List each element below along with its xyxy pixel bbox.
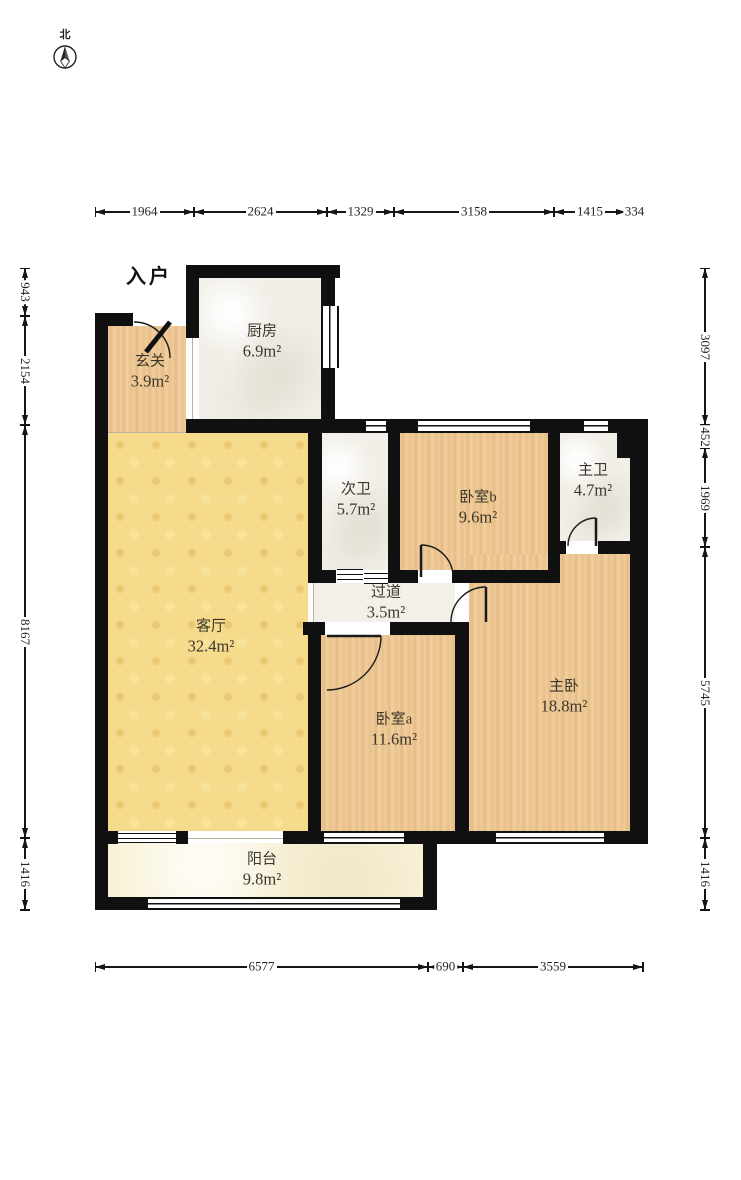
floor-plan: 北 入户 [0,0,741,1180]
wall [455,622,469,832]
dim-top-1: 2624 [194,205,327,219]
label-living-room: 客厅 32.4m² [188,617,235,656]
dim-right-2: 1969 [698,448,712,547]
wall [386,419,418,433]
wall [598,541,648,554]
window-master-bedroom [496,831,604,844]
wall [186,419,327,433]
wall [308,433,322,583]
window-kitchen [321,306,339,368]
dim-right-4: 1416 [698,838,712,910]
wall [604,831,648,844]
label-balcony: 阳台 9.8m² [243,850,281,889]
dim-top-5: 334 [626,205,643,219]
wall [308,622,321,843]
wall [327,419,366,433]
label-entry-hall: 玄关 3.9m² [131,352,169,391]
dim-top-0: 1964 [95,205,194,219]
wall [530,419,584,433]
wall [95,313,108,910]
wall [176,831,188,844]
sliding-door-second-bathroom-a [337,569,363,580]
sliding-door-living-balcony [118,833,176,843]
window-second-bathroom [366,419,386,433]
dim-top-3: 3158 [394,205,554,219]
north-arrow-icon [50,42,80,72]
compass: 北 [48,26,82,77]
dim-left-2: 8167 [18,425,32,838]
wall [95,897,148,910]
door-bedroom-a [324,633,384,693]
label-hallway: 过道 3.5m² [367,583,405,622]
wall [400,897,437,910]
dim-bottom-1: 690 [428,960,463,974]
open-boundary-hall-living [108,432,186,433]
door-master-bedroom [449,584,489,624]
wall [283,831,324,844]
label-master-bedroom: 主卧 18.8m² [541,677,588,716]
window-bedroom-b [418,419,530,433]
dim-bottom-0: 6577 [95,960,428,974]
wall [308,570,336,583]
wall [400,570,418,583]
open-boundary-living-hallway [313,583,314,622]
wall [186,265,340,278]
label-kitchen: 厨房 6.9m² [243,322,281,361]
wall [321,265,335,308]
open-boundary-hall-kitchen [192,338,193,419]
dim-right-1: 452 [698,425,712,448]
label-second-bathroom: 次卫 5.7m² [337,480,375,519]
dim-top-2: 1329 [327,205,394,219]
wall [95,831,118,844]
open-boundary-living-balcony [188,838,283,839]
entrance-label: 入户 [126,260,172,289]
wall [404,831,496,844]
wall [548,541,560,583]
dim-top-4: 1415 [554,205,626,219]
door-bedroom-b [418,542,456,580]
dim-right-3: 5745 [698,547,712,838]
label-bedroom-a: 卧室a 11.6m² [371,710,417,749]
door-master-bathroom [565,515,599,549]
dim-right-0: 3097 [698,268,712,425]
window-balcony [148,897,400,910]
label-bedroom-b: 卧室b 9.6m² [459,488,497,527]
wall [548,433,560,554]
window-master-bathroom [584,419,608,433]
wall [630,440,648,843]
compass-north-label: 北 [48,26,82,42]
dim-left-3: 1416 [18,838,32,910]
label-master-bathroom: 主卫 4.7m² [574,461,612,500]
dim-left-1: 2154 [18,316,32,425]
wall [452,570,560,583]
wall [186,265,199,338]
window-bedroom-a [324,831,404,844]
dim-left-0: 943 [18,268,32,316]
wall [388,433,400,583]
wall [390,622,455,635]
dim-bottom-2: 3559 [463,960,643,974]
